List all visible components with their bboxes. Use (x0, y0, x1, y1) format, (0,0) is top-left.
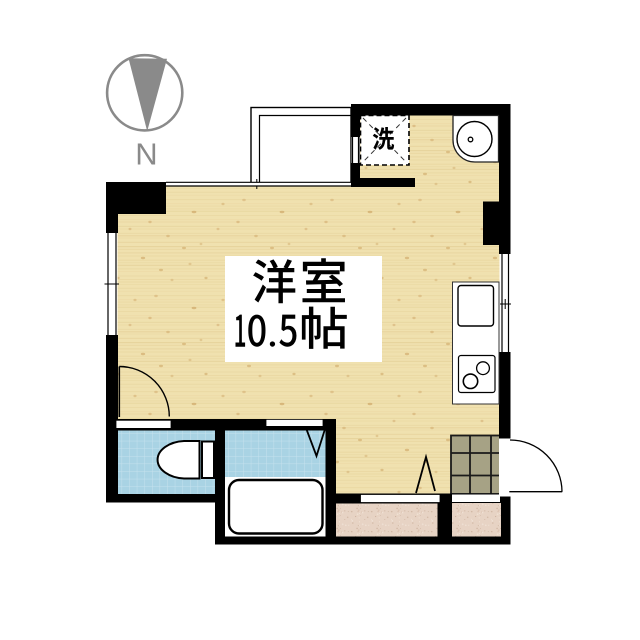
svg-text:N: N (135, 137, 157, 172)
